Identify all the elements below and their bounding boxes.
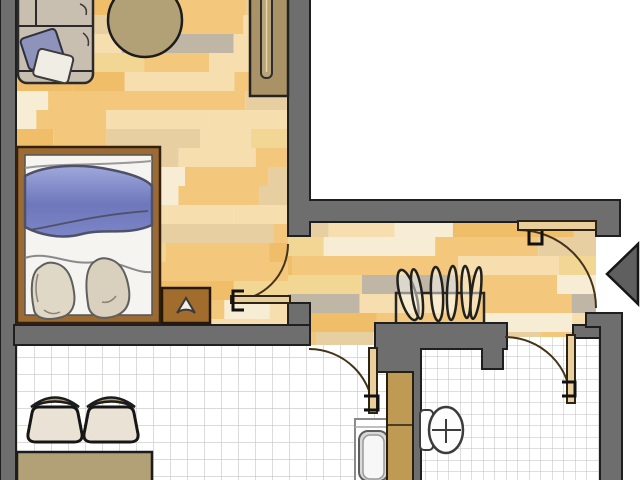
parquet-plank <box>53 129 107 149</box>
blanket <box>25 166 152 237</box>
sink-basin-inner <box>363 435 384 479</box>
toilet <box>420 407 463 453</box>
wall-door-jamb <box>288 303 310 327</box>
nightstand <box>162 288 210 323</box>
parquet-plank <box>151 91 246 111</box>
parquet-plank <box>165 243 269 263</box>
parquet-plank <box>458 256 559 276</box>
parquet-plank <box>200 129 251 149</box>
wall-left <box>0 0 16 480</box>
parquet-plank <box>251 129 323 149</box>
entrance-arrow-icon <box>607 244 638 304</box>
kitchen-table <box>17 452 152 480</box>
floor-plan <box>0 0 640 480</box>
door-leaf <box>518 221 596 230</box>
hanger-icon <box>446 266 458 320</box>
parquet-plank <box>107 129 201 149</box>
parquet-plank <box>178 186 259 206</box>
parquet-plank <box>435 237 538 257</box>
cabinet <box>387 372 413 480</box>
door-leaf <box>231 296 290 303</box>
parquet-plank <box>269 167 357 187</box>
parquet-plank <box>324 237 435 257</box>
floor-plan-canvas <box>0 0 640 480</box>
bed <box>17 147 160 323</box>
door-leaf <box>369 348 377 413</box>
shelf-unit <box>250 0 288 96</box>
wall-middle-left <box>14 325 310 345</box>
kitchen-sink <box>355 419 391 480</box>
parquet-plank <box>292 256 352 276</box>
parquet-plank <box>125 72 235 92</box>
parquet-plank <box>179 148 256 168</box>
cabinet-body <box>387 372 413 480</box>
sofa <box>18 0 93 84</box>
parquet-plank <box>36 110 106 130</box>
parquet-plank <box>106 110 208 130</box>
chair-seat <box>28 407 82 442</box>
parquet-plank <box>185 167 269 187</box>
parquet-plank <box>48 91 150 111</box>
parquet-plank <box>538 237 617 257</box>
wall-top <box>288 0 620 236</box>
parquet-plank <box>214 224 273 244</box>
chair-seat <box>84 407 138 442</box>
